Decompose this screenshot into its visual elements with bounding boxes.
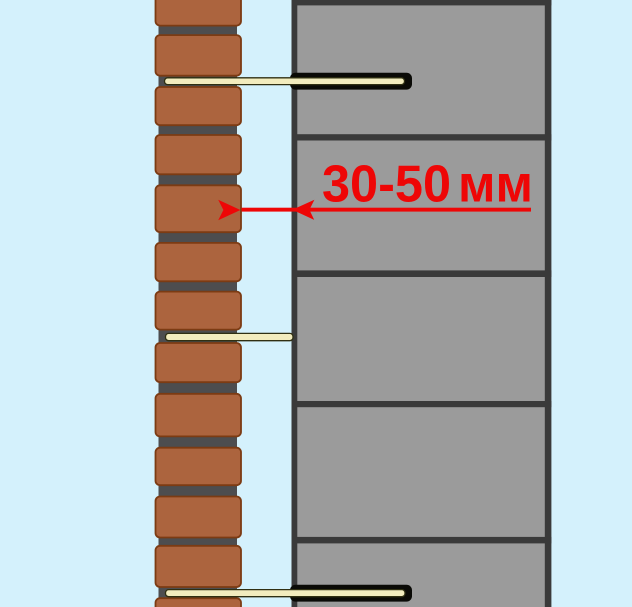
svg-text:мм: мм <box>458 155 533 213</box>
svg-text:30-50: 30-50 <box>322 155 451 213</box>
